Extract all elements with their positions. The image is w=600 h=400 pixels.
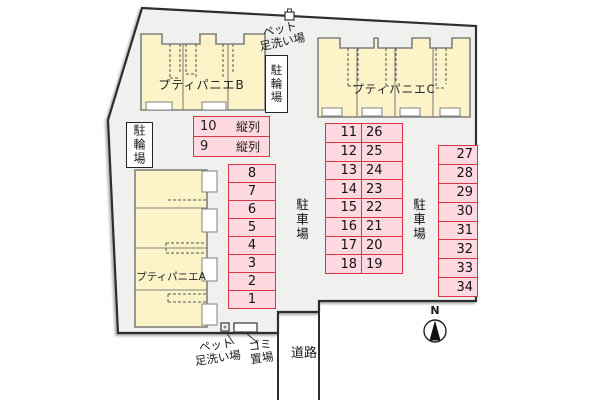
building-b [141, 34, 265, 110]
parking-spot: 33 [439, 259, 477, 277]
parking-spot: 11 [326, 124, 361, 142]
parking-spot: 27 [439, 146, 477, 164]
parking-spot: 1 [229, 291, 275, 308]
parking-spot: 23 [362, 180, 402, 198]
parking-spot: 18 [326, 255, 361, 273]
parking-spot-10: 10 縦列 [194, 117, 269, 136]
parking-spot: 21 [362, 218, 402, 236]
parking-spot: 6 [229, 201, 275, 218]
parking-column-11-26: 11 26 12 25 13 24 14 23 15 22 16 21 17 2… [325, 123, 403, 274]
tandem-parking-spots: 10 縦列 9 縦列 [193, 116, 270, 157]
parking-spot: 26 [362, 124, 402, 142]
parking-spot: 2 [229, 273, 275, 290]
parking-spot: 29 [439, 184, 477, 202]
parking-spot: 14 [326, 180, 361, 198]
building-a-label: プティパニエA [133, 271, 209, 283]
building-b-label: プティパニエB [145, 79, 258, 93]
parking-spot: 8 [229, 165, 275, 182]
parking-spot: 16 [326, 218, 361, 236]
bicycle-parking-label: 駐輪場 [131, 124, 148, 166]
parking-spot: 32 [439, 240, 477, 258]
parking-spot: 25 [362, 143, 402, 161]
parking-spot: 15 [326, 199, 361, 217]
north-label: N [428, 305, 442, 318]
north-compass-icon [424, 320, 446, 342]
building-c-label: プティパニエC [318, 83, 470, 96]
parking-spot: 28 [439, 165, 477, 183]
bicycle-parking-box-middle: 駐輪場 [265, 55, 288, 113]
parking-spot: 31 [439, 222, 477, 240]
parking-column-27-34: 27 28 29 30 31 32 33 34 [438, 145, 478, 297]
parking-spot: 34 [439, 278, 477, 296]
parking-spot: 5 [229, 219, 275, 236]
parking-spot: 4 [229, 237, 275, 254]
building-c [318, 38, 470, 117]
bicycle-parking-label: 駐輪場 [269, 64, 285, 105]
road-label: 道路 [286, 347, 322, 362]
parking-spot: 13 [326, 162, 361, 180]
tandem-label: 縦列 [236, 118, 260, 135]
parking-spot: 12 [326, 143, 361, 161]
parking-spot-9: 9 縦列 [194, 137, 269, 156]
bicycle-parking-box-left: 駐輪場 [126, 122, 153, 168]
garbage-area-label: ゴミ 置場 [241, 337, 280, 367]
parking-spot: 19 [362, 255, 402, 273]
parking-spot: 20 [362, 237, 402, 255]
parking-column-1-8: 8 7 6 5 4 3 2 1 [228, 164, 276, 309]
parking-spot: 30 [439, 203, 477, 221]
parking-spot: 22 [362, 199, 402, 217]
parking-spot: 7 [229, 183, 275, 200]
parking-lot-label-right: 駐車場 [409, 198, 428, 242]
parking-spot: 24 [362, 162, 402, 180]
building-a [135, 170, 217, 327]
parking-lot-label-middle: 駐車場 [292, 198, 311, 242]
parking-spot: 3 [229, 255, 275, 272]
tandem-label: 縦列 [236, 138, 260, 155]
parking-spot: 17 [326, 237, 361, 255]
site-plan: プティパニエB プティパニエC プティパニエA 駐輪場 駐輪場 駐車場 駐車場 … [0, 0, 600, 400]
spot-number: 9 [200, 139, 208, 154]
spot-number: 10 [200, 119, 217, 134]
